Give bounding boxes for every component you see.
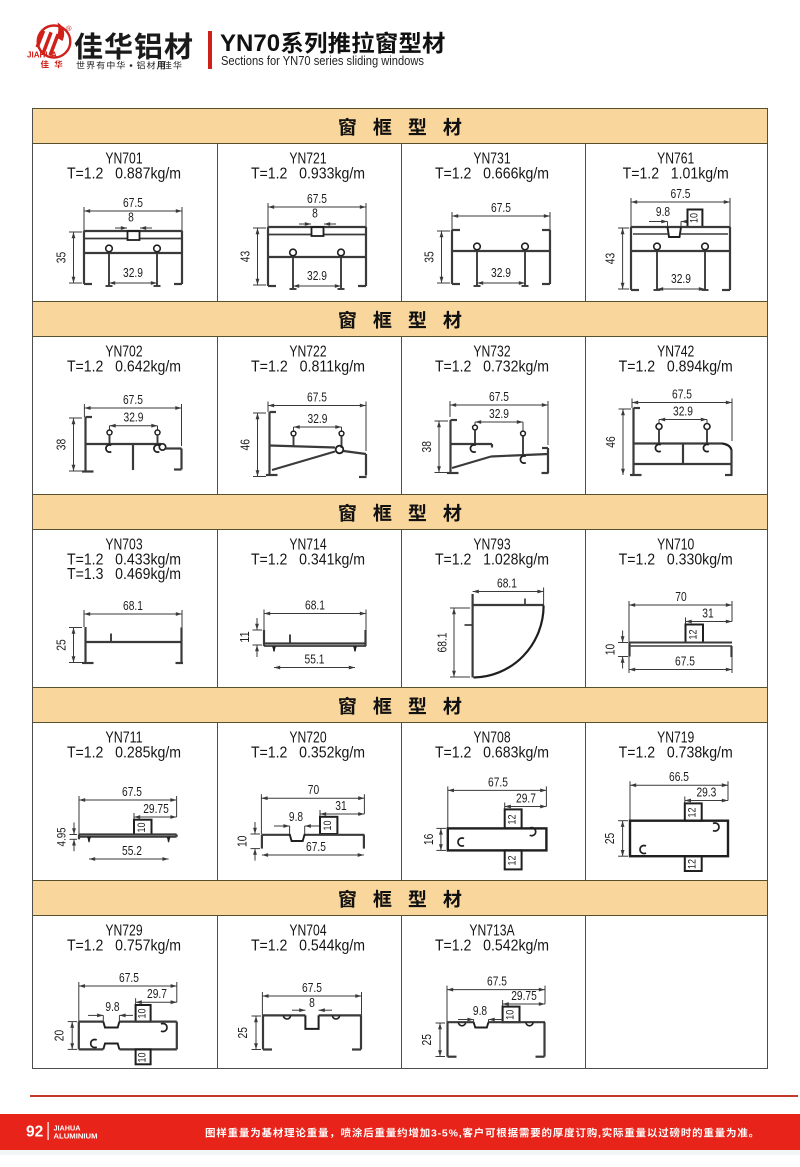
svg-text:T=1.2 0.757kg/m: T=1.2 0.757kg/m	[67, 938, 181, 955]
svg-text:®: ®	[66, 24, 72, 33]
svg-text:T=1.2 0.544kg/m: T=1.2 0.544kg/m	[251, 938, 365, 955]
svg-text:ALUMINIUM: ALUMINIUM	[54, 1133, 98, 1140]
svg-text:JIAHUA: JIAHUA	[27, 51, 57, 60]
svg-text:T=1.2 1.01kg/m: T=1.2 1.01kg/m	[623, 166, 729, 183]
svg-text:JIAHUA: JIAHUA	[54, 1126, 81, 1133]
svg-text:T=1.2 0.642kg/m: T=1.2 0.642kg/m	[67, 359, 181, 376]
svg-text:3-5%,: 3-5%,	[431, 1128, 462, 1140]
svg-text:Sections for YN70 series slidi: Sections for YN70 series sliding windows	[221, 54, 424, 68]
svg-text:T=1.2 0.894kg/m: T=1.2 0.894kg/m	[619, 359, 733, 376]
svg-text:YN70: YN70	[220, 30, 280, 57]
svg-text:T=1.2 0.811kg/m: T=1.2 0.811kg/m	[251, 359, 365, 376]
svg-text:T=1.2 0.933kg/m: T=1.2 0.933kg/m	[251, 166, 365, 183]
svg-text:T=1.2 0.542kg/m: T=1.2 0.542kg/m	[435, 938, 549, 955]
svg-text:T=1.2 0.666kg/m: T=1.2 0.666kg/m	[435, 166, 549, 183]
svg-text:,: ,	[598, 1128, 602, 1140]
svg-text:T=1.3 0.469kg/m: T=1.3 0.469kg/m	[67, 566, 181, 583]
svg-text:T=1.2 0.341kg/m: T=1.2 0.341kg/m	[251, 552, 365, 569]
svg-text:T=1.2 0.330kg/m: T=1.2 0.330kg/m	[619, 552, 733, 569]
svg-text:92: 92	[26, 1124, 43, 1141]
svg-text:T=1.2 0.683kg/m: T=1.2 0.683kg/m	[435, 745, 549, 762]
svg-text:T=1.2 0.887kg/m: T=1.2 0.887kg/m	[67, 166, 181, 183]
svg-text:T=1.2 0.285kg/m: T=1.2 0.285kg/m	[67, 745, 181, 762]
svg-text:T=1.2 0.738kg/m: T=1.2 0.738kg/m	[619, 745, 733, 762]
svg-text:T=1.2 0.732kg/m: T=1.2 0.732kg/m	[435, 359, 549, 376]
svg-text:T=1.2 1.028kg/m: T=1.2 1.028kg/m	[435, 552, 549, 569]
svg-text:T=1.2 0.352kg/m: T=1.2 0.352kg/m	[251, 745, 365, 762]
